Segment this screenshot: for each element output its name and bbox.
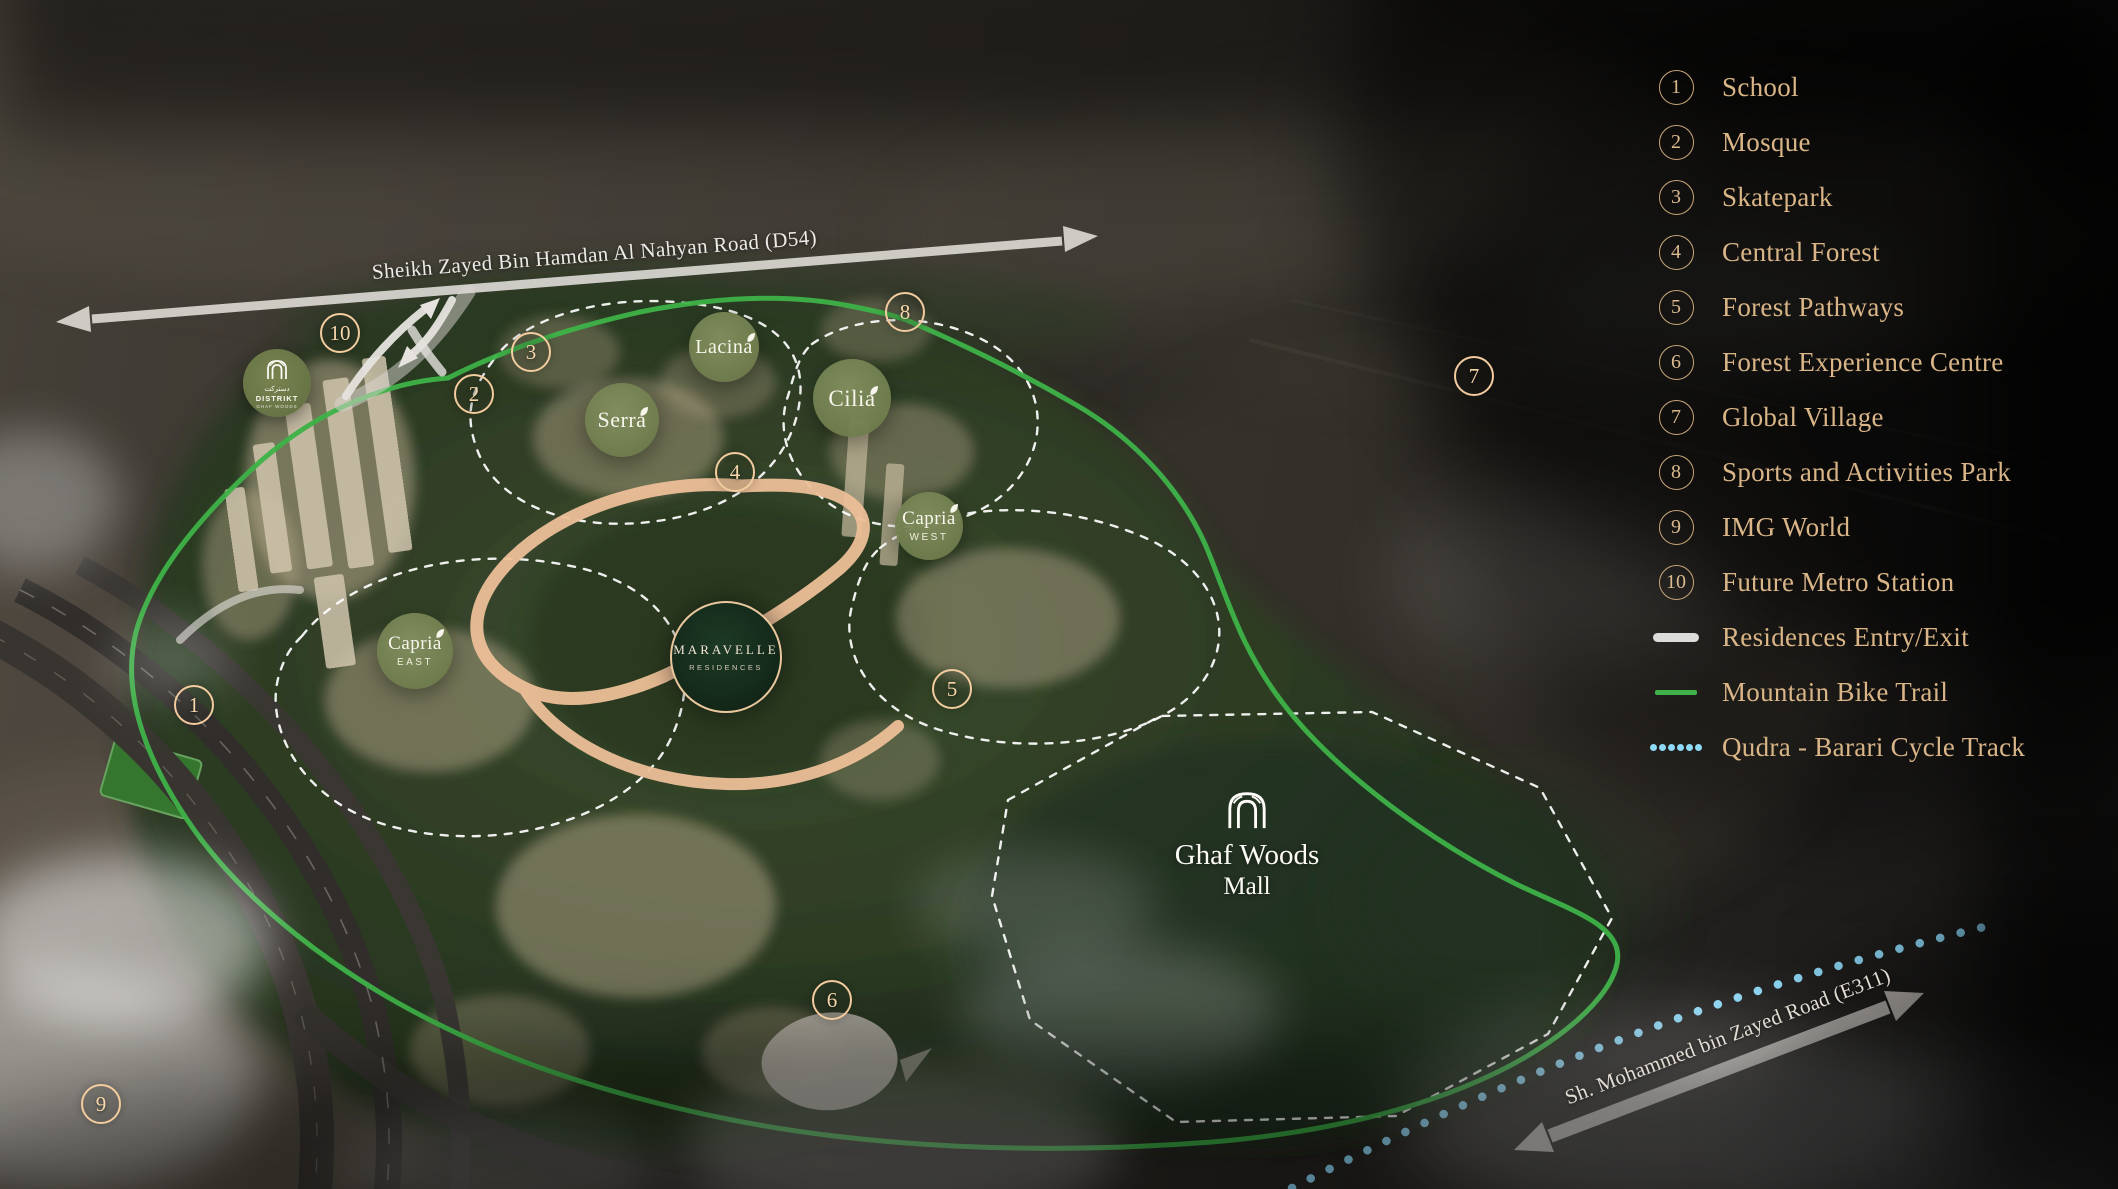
legend-number-circle: 9 (1659, 510, 1694, 545)
community-name: Capria (388, 634, 442, 653)
ghaf-woods-mall-label: Ghaf Woods Mall (1147, 788, 1347, 901)
leaf-icon (744, 328, 757, 348)
legend-item-label: Skatepark (1722, 182, 1833, 213)
community-name: Cilia (828, 387, 875, 410)
map-marker-9: 9 (81, 1084, 121, 1124)
legend-item-label: Qudra - Barari Cycle Track (1722, 732, 2025, 763)
legend-number-circle: 8 (1659, 455, 1694, 490)
legend-number-slot: 10 (1652, 565, 1700, 600)
legend-item-label: Global Village (1722, 402, 1884, 433)
map-marker-8: 8 (885, 292, 925, 332)
legend-item-label: School (1722, 72, 1799, 103)
maravelle-name: MARAVELLE (673, 642, 778, 658)
legend-number-circle: 4 (1659, 235, 1694, 270)
legend-number-slot: 2 (1652, 125, 1700, 160)
distrikt-subtitle: GHAF WOODS (256, 404, 297, 409)
map-marker-4: 4 (715, 452, 755, 492)
distrikt-arabic-name: دستركت (264, 386, 289, 393)
leaf-icon (947, 500, 960, 519)
legend-number-circle: 5 (1659, 290, 1694, 325)
mall-name-line1: Ghaf Woods (1175, 839, 1320, 872)
legend-item-8: 8Sports and Activities Park (1652, 445, 2092, 500)
legend-swatch-slot (1652, 633, 1700, 642)
legend-item-1: 1School (1652, 60, 2092, 115)
legend-item-5: 5Forest Pathways (1652, 280, 2092, 335)
map-marker-10: 10 (320, 313, 360, 353)
legend-item-6: 6Forest Experience Centre (1652, 335, 2092, 390)
legend-number-circle: 1 (1659, 70, 1694, 105)
legend-swatch-solid (1655, 690, 1697, 695)
map-marker-1: 1 (174, 685, 214, 725)
maravelle-subtitle: RESIDENCES (689, 663, 763, 672)
legend-number-circle: 10 (1659, 565, 1694, 600)
map-marker-5: 5 (932, 669, 972, 709)
community-name: Lacina (695, 337, 752, 357)
legend-number-slot: 6 (1652, 345, 1700, 380)
legend-item-2: 2Mosque (1652, 115, 2092, 170)
legend-item-7: 7Global Village (1652, 390, 2092, 445)
legend-number-slot: 4 (1652, 235, 1700, 270)
leaf-icon (867, 378, 880, 401)
community-badge-capria-west: CapriaWEST (895, 492, 963, 560)
legend-item-label: Forest Experience Centre (1722, 347, 2004, 378)
legend-items: 1School2Mosque3Skatepark4Central Forest5… (1652, 60, 2092, 610)
legend-number-slot: 9 (1652, 510, 1700, 545)
legend-item-9: 9IMG World (1652, 500, 2092, 555)
community-badge-serra: Serra (585, 383, 659, 457)
legend-swatch-solid-thick (1653, 633, 1699, 642)
legend-number-circle: 2 (1659, 125, 1694, 160)
leaf-icon (433, 625, 446, 644)
legend-item-label: Central Forest (1722, 237, 1880, 268)
map-marker-2: 2 (454, 374, 494, 414)
legend-item-4: 4Central Forest (1652, 225, 2092, 280)
community-name: Capria (902, 509, 956, 528)
community-badge-capria-east: CapriaEAST (377, 613, 453, 689)
distrikt-name: DISTRIKT (256, 394, 299, 403)
legend-item-label: Mosque (1722, 127, 1811, 158)
legend-swatch-slot (1652, 744, 1700, 751)
legend-swatch-dotted (1650, 744, 1702, 751)
legend-item-label: IMG World (1722, 512, 1850, 543)
legend-number-slot: 8 (1652, 455, 1700, 490)
leaf-icon (637, 400, 650, 422)
legend-number-slot: 1 (1652, 70, 1700, 105)
legend-line-solid-thick: Residences Entry/Exit (1652, 610, 2092, 665)
arch-icon (265, 358, 289, 385)
legend-item-label: Residences Entry/Exit (1722, 622, 1969, 653)
community-badge-cilia: Cilia (813, 359, 891, 437)
legend-item-label: Forest Pathways (1722, 292, 1904, 323)
legend-number-circle: 7 (1659, 400, 1694, 435)
map-marker-3: 3 (511, 332, 551, 372)
legend-line-solid: Mountain Bike Trail (1652, 665, 2092, 720)
legend-line-dotted: Qudra - Barari Cycle Track (1652, 720, 2092, 775)
legend: 1School2Mosque3Skatepark4Central Forest5… (1652, 60, 2092, 775)
legend-item-label: Future Metro Station (1722, 567, 1954, 598)
legend-line-items: Residences Entry/ExitMountain Bike Trail… (1652, 610, 2092, 775)
legend-item-label: Mountain Bike Trail (1722, 677, 1948, 708)
maravelle-residences-badge: MARAVELLE RESIDENCES (670, 601, 782, 713)
legend-item-3: 3Skatepark (1652, 170, 2092, 225)
map-marker-6: 6 (812, 980, 852, 1020)
mall-name-line2: Mall (1223, 873, 1270, 901)
arch-icon (1224, 788, 1270, 835)
community-subname: EAST (397, 657, 433, 668)
legend-number-slot: 3 (1652, 180, 1700, 215)
masterplan-map: Sheikh Zayed Bin Hamdan Al Nahyan Road (… (0, 0, 2118, 1189)
community-subname: WEST (910, 532, 949, 543)
legend-swatch-slot (1652, 690, 1700, 695)
legend-number-slot: 7 (1652, 400, 1700, 435)
community-badge-lacina: Lacina (689, 312, 759, 382)
legend-number-slot: 5 (1652, 290, 1700, 325)
legend-number-circle: 3 (1659, 180, 1694, 215)
legend-item-10: 10Future Metro Station (1652, 555, 2092, 610)
map-marker-7: 7 (1454, 356, 1494, 396)
distrikt-badge: دستركت DISTRIKT GHAF WOODS (243, 349, 311, 417)
legend-item-label: Sports and Activities Park (1722, 457, 2011, 488)
legend-number-circle: 6 (1659, 345, 1694, 380)
community-name: Serra (598, 409, 647, 431)
